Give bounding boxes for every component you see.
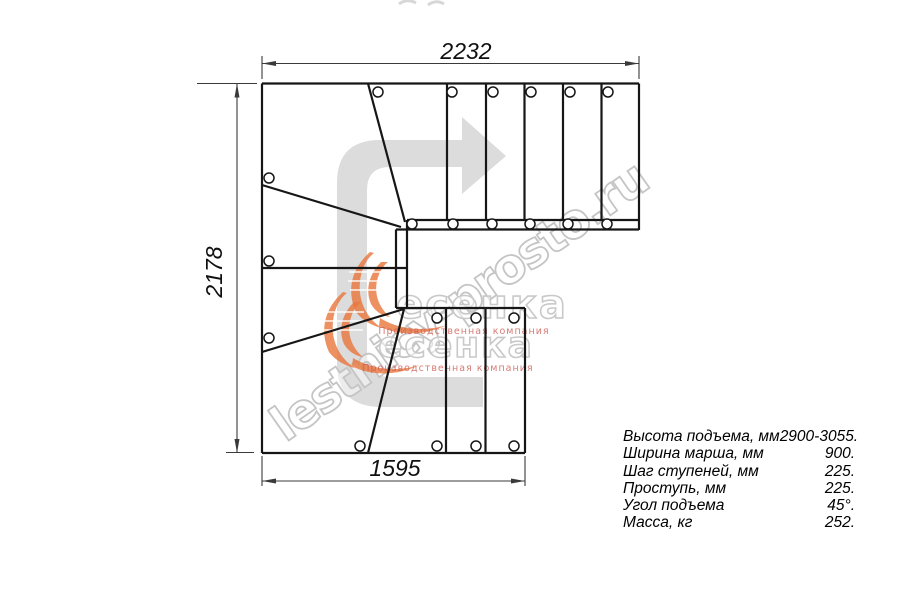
screw-hole bbox=[509, 441, 519, 451]
spec-label: Шаг ступеней, мм bbox=[623, 463, 759, 480]
screw-hole bbox=[264, 173, 274, 183]
screw-hole bbox=[355, 441, 365, 451]
cropped-watermark-fragment bbox=[428, 2, 444, 5]
winder-line bbox=[262, 185, 401, 227]
spec-value: 2900-3055. bbox=[780, 428, 858, 445]
screw-hole bbox=[264, 333, 274, 343]
cropped-watermark-fragment bbox=[399, 1, 416, 4]
screw-hole bbox=[525, 219, 535, 229]
dimension-top: 2232 bbox=[262, 38, 639, 79]
spec-row: Высота подъема, мм 2900-3055. bbox=[623, 428, 855, 445]
spec-value: 45°. bbox=[827, 497, 855, 514]
screw-hole bbox=[487, 219, 497, 229]
brand-watermark-text: есенка bbox=[378, 325, 534, 366]
spec-label: Ширина марша, мм bbox=[623, 445, 764, 462]
screw-hole bbox=[373, 87, 383, 97]
spec-value: 900. bbox=[825, 445, 855, 462]
screw-hole bbox=[509, 313, 519, 323]
spec-row: Шаг ступеней, мм 225. bbox=[623, 463, 855, 480]
spec-row: Масса, кг 252. bbox=[623, 514, 855, 531]
stair-drawing-canvas: lestnicy-prosto.ru есенка Производственн… bbox=[0, 0, 900, 600]
spec-label: Проступь, мм bbox=[623, 480, 726, 497]
dimension-top-value: 2232 bbox=[439, 38, 491, 64]
screw-hole bbox=[471, 441, 481, 451]
screw-hole bbox=[565, 87, 575, 97]
dimension-bottom-value: 1595 bbox=[369, 455, 420, 481]
screw-hole bbox=[432, 441, 442, 451]
dimension-left-value: 2178 bbox=[201, 246, 227, 298]
spec-label: Угол подъема bbox=[623, 497, 724, 514]
spec-table: Высота подъема, мм 2900-3055. Ширина мар… bbox=[623, 428, 855, 532]
screw-hole bbox=[448, 219, 458, 229]
brand-watermark-text: есенка bbox=[396, 282, 568, 328]
screw-hole bbox=[602, 219, 612, 229]
screw-hole bbox=[603, 87, 613, 97]
dimension-left: 2178 bbox=[197, 84, 257, 454]
screw-hole bbox=[407, 219, 417, 229]
spec-label: Масса, кг bbox=[623, 514, 692, 531]
screw-hole bbox=[526, 87, 536, 97]
screw-hole bbox=[471, 313, 481, 323]
watermark-layer: lestnicy-prosto.ru есенка Производственн… bbox=[260, 1, 658, 453]
spec-row: Проступь, мм 225. bbox=[623, 480, 855, 497]
screw-hole bbox=[447, 87, 457, 97]
spec-row: Ширина марша, мм 900. bbox=[623, 445, 855, 462]
spec-row: Угол подъема 45°. bbox=[623, 497, 855, 514]
spec-value: 225. bbox=[825, 463, 855, 480]
spec-label: Высота подъема, мм bbox=[623, 428, 780, 445]
screw-hole bbox=[432, 313, 442, 323]
screw-hole bbox=[563, 219, 573, 229]
spec-value: 225. bbox=[825, 480, 855, 497]
screw-hole bbox=[264, 256, 274, 266]
screw-hole bbox=[488, 87, 498, 97]
spec-value: 252. bbox=[825, 514, 855, 531]
dimension-bottom: 1595 bbox=[262, 455, 525, 486]
